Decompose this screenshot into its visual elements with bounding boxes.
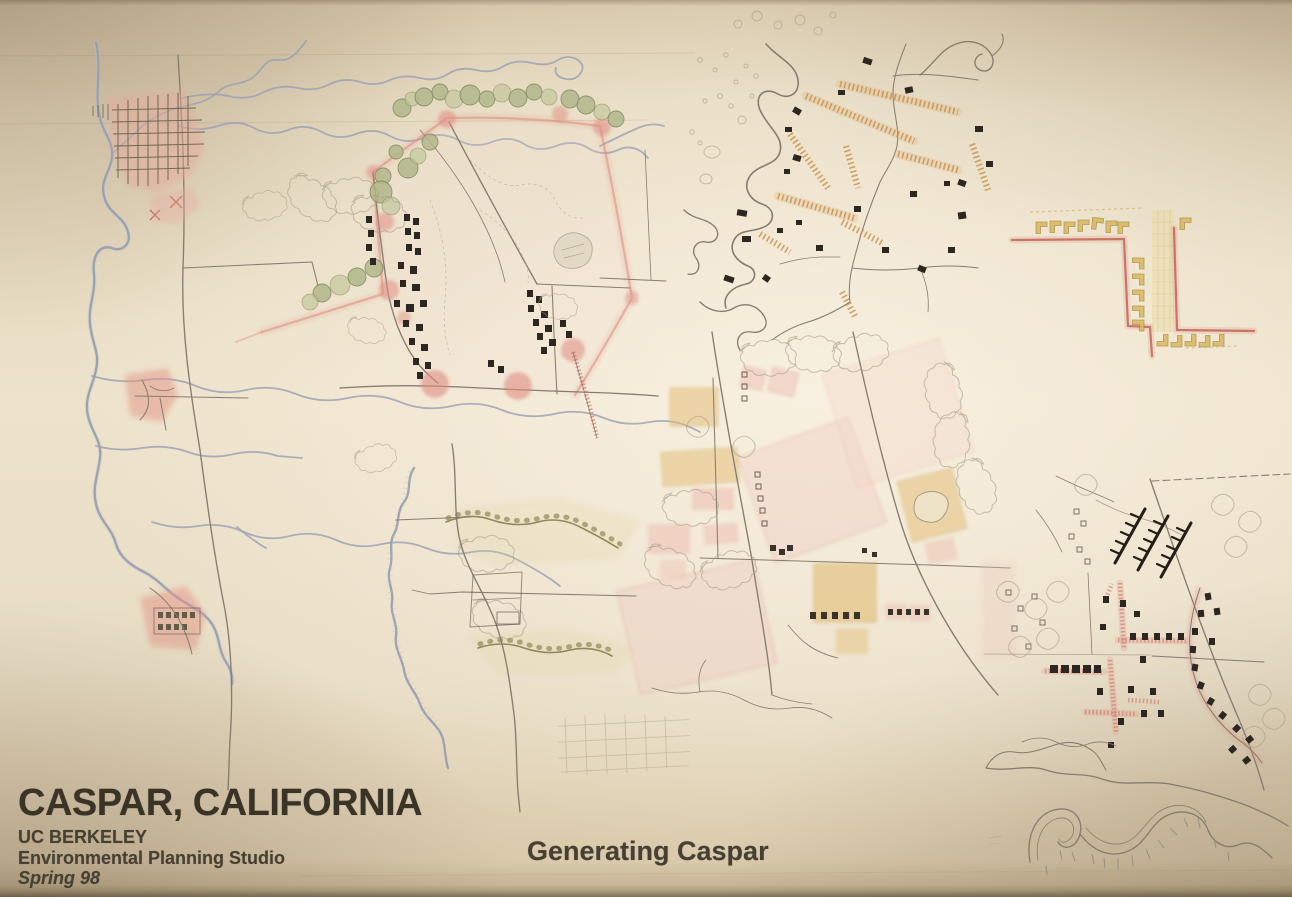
hedgerows bbox=[760, 84, 988, 318]
coastal-settlement-south bbox=[140, 586, 206, 654]
hedgerow-fields-sketch bbox=[684, 11, 1003, 350]
photo-bottom-shadow bbox=[0, 885, 1292, 897]
red-streets-village bbox=[1045, 583, 1186, 732]
headlands-site-plan bbox=[236, 84, 666, 438]
river-contours-sketch bbox=[986, 742, 1288, 875]
poster-artwork bbox=[0, 0, 1292, 897]
coastal-settlement-mid bbox=[125, 368, 248, 430]
curved-lane bbox=[1190, 588, 1262, 765]
building-combs bbox=[1111, 509, 1191, 577]
photo-top-shadow bbox=[0, 0, 1292, 6]
poster-studio: Environmental Planning Studio bbox=[18, 849, 422, 869]
poster-institution: UC BERKELEY bbox=[18, 828, 422, 848]
poster-title: CASPAR, CALIFORNIA bbox=[18, 784, 422, 822]
crossroads-block-plan bbox=[1012, 208, 1254, 356]
poster-caption: Generating Caspar bbox=[527, 836, 769, 867]
village-center-plan bbox=[982, 474, 1290, 790]
poster-photo: CASPAR, CALIFORNIA UC BERKELEY Environme… bbox=[0, 0, 1292, 897]
pencil-grid-sketch bbox=[557, 712, 691, 777]
title-block: CASPAR, CALIFORNIA UC BERKELEY Environme… bbox=[18, 784, 422, 889]
